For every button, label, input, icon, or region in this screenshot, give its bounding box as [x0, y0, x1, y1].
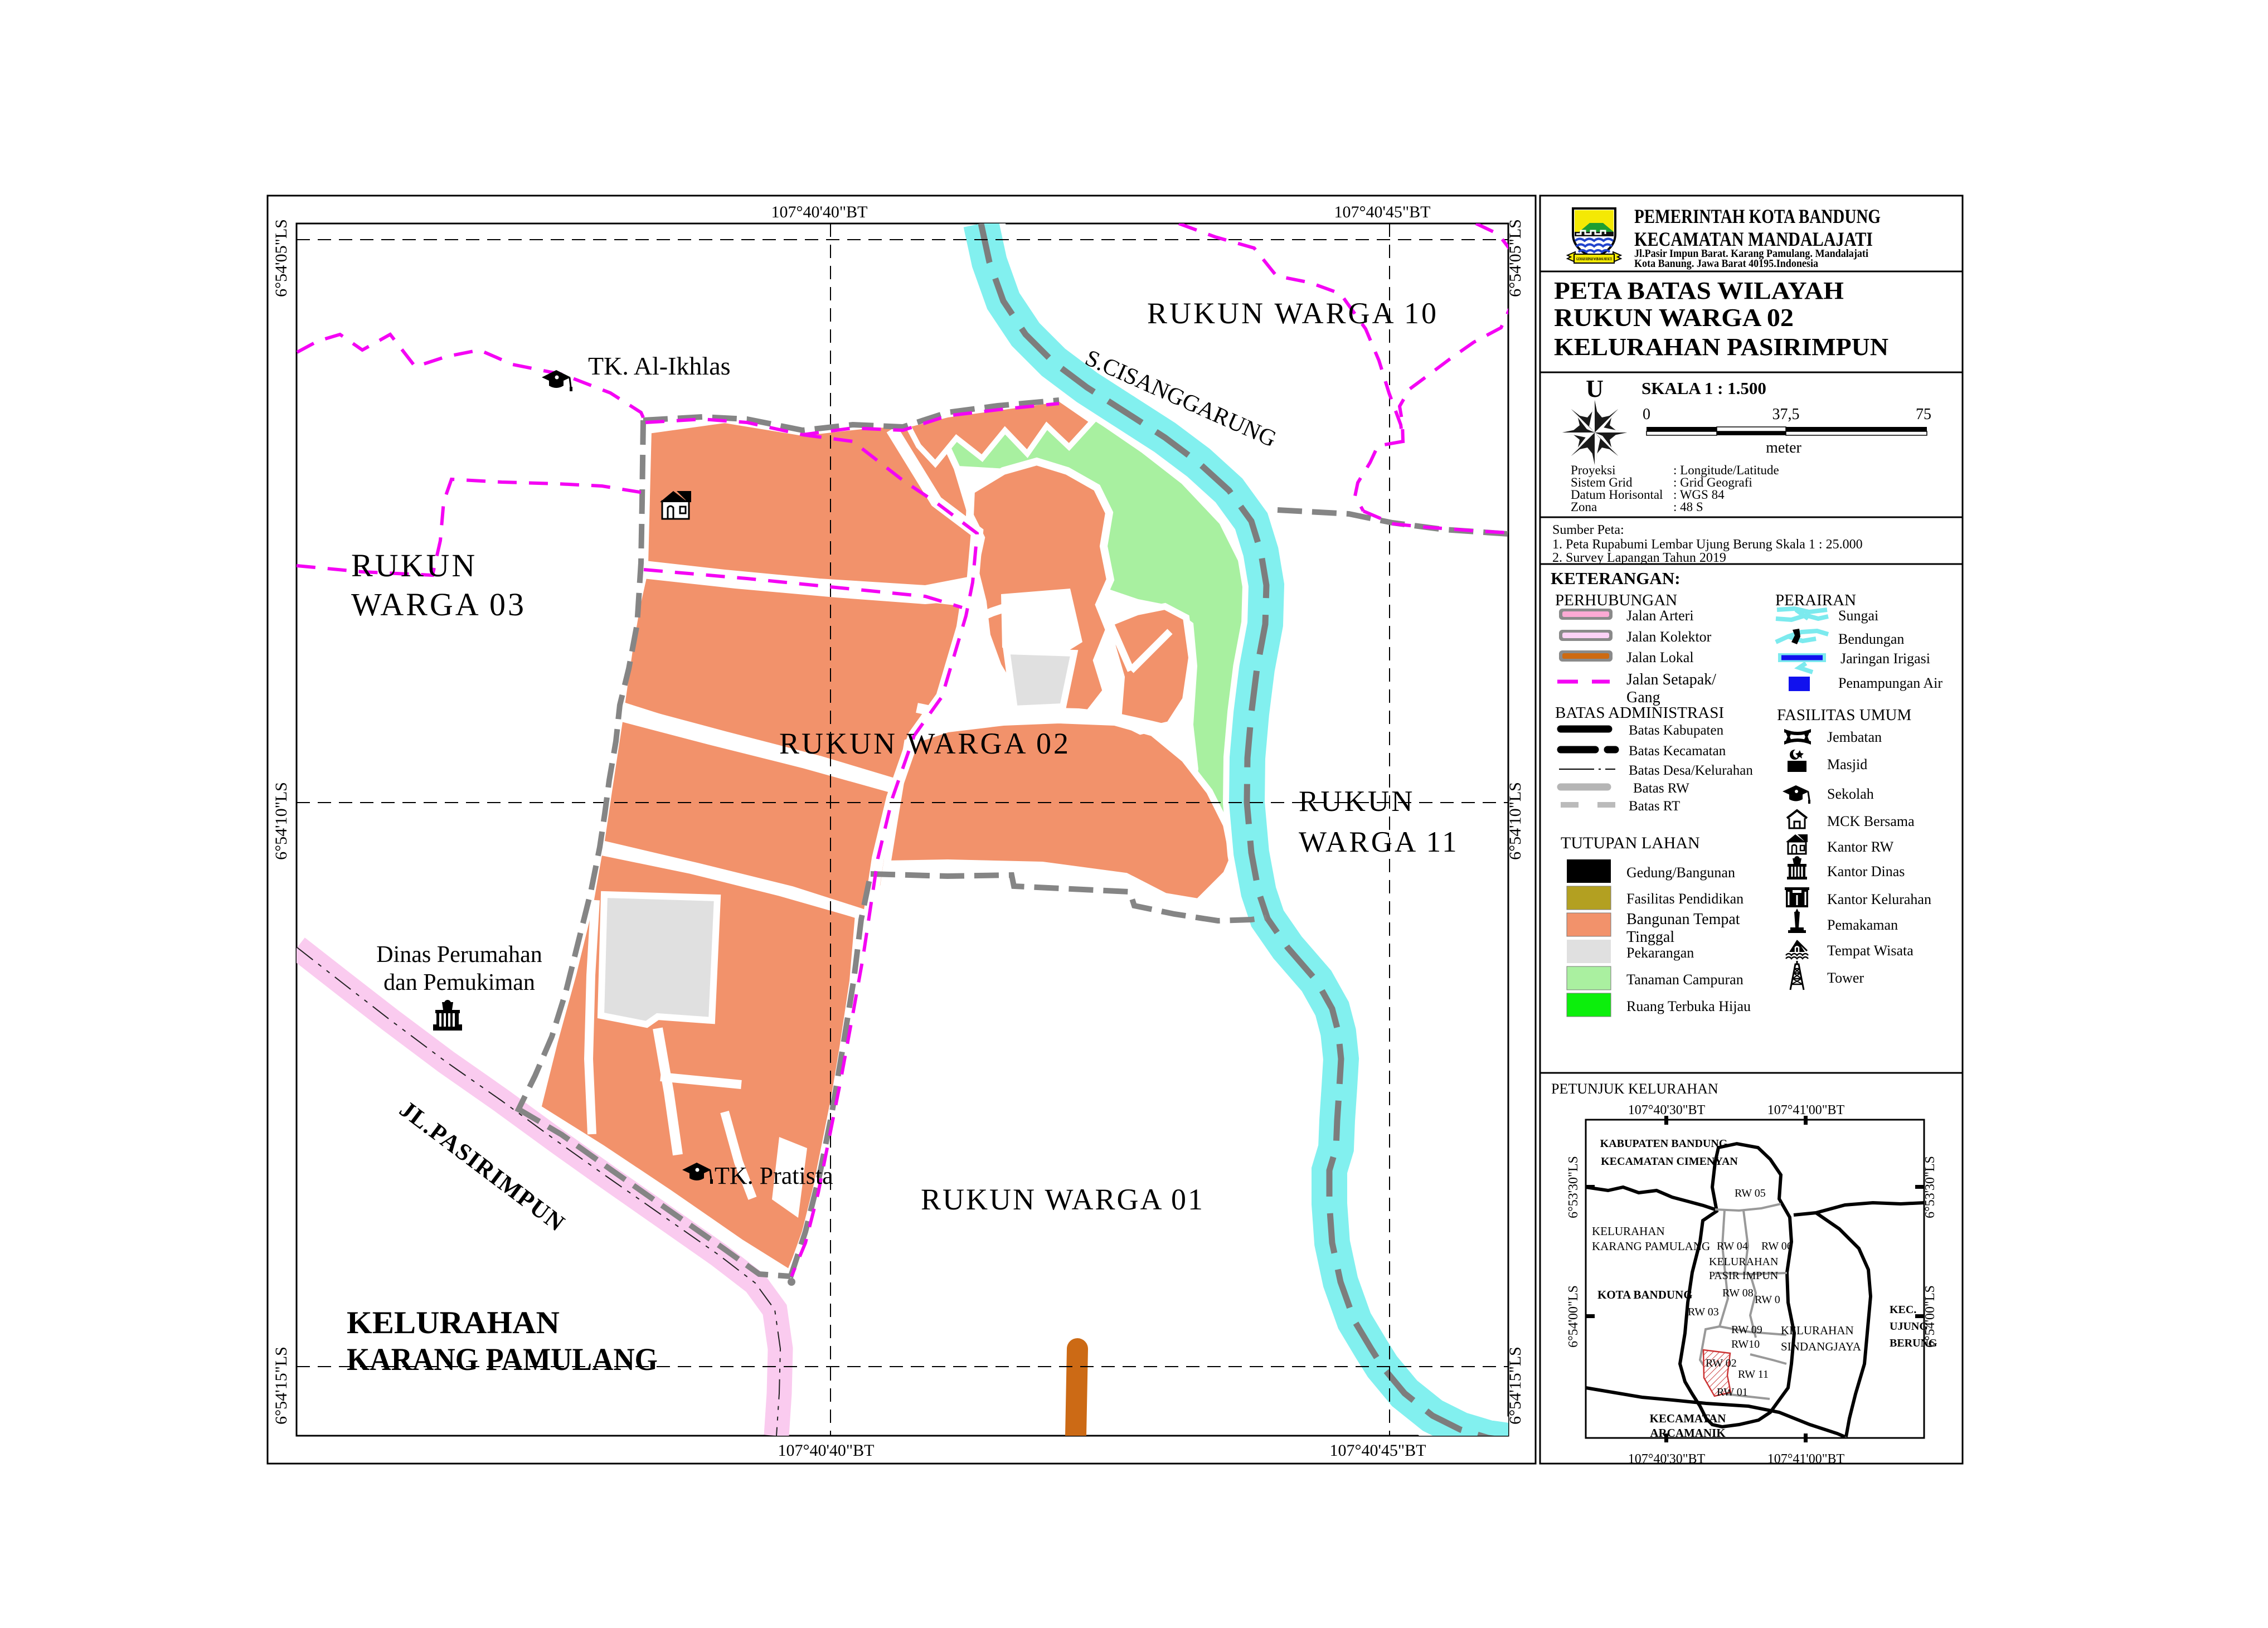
svg-text:RW 03: RW 03: [1688, 1306, 1719, 1318]
svg-text:RW 06: RW 06: [1761, 1240, 1793, 1252]
svg-text:PERHUBUNGAN: PERHUBUNGAN: [1555, 591, 1677, 609]
svg-text:PETA BATAS WILAYAH: PETA BATAS WILAYAH: [1554, 277, 1844, 304]
svg-text:Bangunan Tempat: Bangunan Tempat: [1626, 911, 1740, 928]
svg-text:2. Survey Lapangan Tahun 2019: 2. Survey Lapangan Tahun 2019: [1552, 551, 1726, 565]
svg-text:107°41'00"BT: 107°41'00"BT: [1767, 1452, 1845, 1466]
svg-text:RUKUN WARGA 02: RUKUN WARGA 02: [1554, 303, 1794, 332]
svg-text:107°40'30"BT: 107°40'30"BT: [1628, 1103, 1706, 1117]
svg-text:Sekolah: Sekolah: [1827, 786, 1874, 802]
svg-text:107°40'40"BT: 107°40'40"BT: [771, 203, 868, 221]
svg-text:Kantor Dinas: Kantor Dinas: [1827, 863, 1905, 879]
svg-text:RW 11: RW 11: [1738, 1368, 1769, 1381]
svg-text:107°41'00"BT: 107°41'00"BT: [1767, 1103, 1845, 1117]
svg-text:Tanaman Campuran: Tanaman Campuran: [1626, 971, 1744, 988]
svg-text:Masjid: Masjid: [1827, 756, 1867, 772]
svg-text:RW 09: RW 09: [1731, 1324, 1762, 1336]
svg-text:KELURAHAN: KELURAHAN: [1781, 1324, 1854, 1337]
svg-text:KELURAHAN: KELURAHAN: [347, 1305, 560, 1340]
svg-text:Kantor RW: Kantor RW: [1827, 839, 1894, 855]
svg-text:Dinas Perumahan: Dinas Perumahan: [376, 942, 542, 968]
svg-text:PERAIRAN: PERAIRAN: [1775, 591, 1856, 609]
svg-text:Kantor Kelurahan: Kantor Kelurahan: [1827, 891, 1931, 907]
svg-text:TK. Pratista: TK. Pratista: [715, 1162, 833, 1189]
svg-text:Jalan Arteri: Jalan Arteri: [1626, 608, 1694, 624]
svg-text:75: 75: [1916, 406, 1931, 423]
svg-text:Pekarangan: Pekarangan: [1626, 945, 1694, 961]
svg-text:Jembatan: Jembatan: [1827, 729, 1882, 745]
svg-text:Penampungan Air: Penampungan Air: [1838, 675, 1942, 691]
svg-text:Ruang Terbuka Hijau: Ruang Terbuka Hijau: [1626, 998, 1751, 1014]
svg-text:GEMAH RIPAH WIBAWA MUKTI: GEMAH RIPAH WIBAWA MUKTI: [1576, 257, 1612, 261]
svg-text:Bendungan: Bendungan: [1838, 631, 1904, 647]
svg-text:37,5: 37,5: [1772, 406, 1800, 423]
svg-text:KOTA BANDUNG: KOTA BANDUNG: [1597, 1288, 1693, 1301]
svg-text:: 48 S: : 48 S: [1673, 500, 1703, 514]
svg-text:TK. Al-Ikhlas: TK. Al-Ikhlas: [588, 352, 731, 380]
svg-text:RW 02: RW 02: [1706, 1357, 1737, 1369]
svg-text:107°40'30"BT: 107°40'30"BT: [1628, 1452, 1706, 1466]
svg-text:Jalan Setapak/: Jalan Setapak/: [1626, 671, 1716, 688]
svg-text:6°54'05"LS: 6°54'05"LS: [1506, 219, 1524, 297]
svg-text:RUKUN WARGA 01: RUKUN WARGA 01: [921, 1183, 1205, 1216]
svg-text:BATAS ADMINISTRASI: BATAS ADMINISTRASI: [1555, 704, 1724, 722]
svg-text:6°54'05"LS: 6°54'05"LS: [272, 219, 290, 297]
svg-text:Fasilitas Pendidikan: Fasilitas Pendidikan: [1626, 891, 1744, 907]
svg-text:Batas Kecamatan: Batas Kecamatan: [1629, 743, 1726, 759]
svg-text:SINDANGJAYA: SINDANGJAYA: [1781, 1340, 1862, 1353]
svg-text:RUKUN WARGA 10: RUKUN WARGA 10: [1147, 297, 1439, 330]
svg-text:Tinggal: Tinggal: [1626, 929, 1674, 946]
svg-text:KARANG PAMULANG: KARANG PAMULANG: [347, 1342, 658, 1377]
svg-text:Batas Desa/Kelurahan: Batas Desa/Kelurahan: [1629, 763, 1753, 778]
svg-text:RW 08: RW 08: [1722, 1287, 1754, 1299]
svg-text:dan Pemukiman: dan Pemukiman: [383, 970, 535, 995]
svg-text:Sumber Peta:: Sumber Peta:: [1552, 523, 1624, 537]
svg-text:UJUNG: UJUNG: [1890, 1320, 1928, 1333]
svg-text:RUKUN: RUKUN: [351, 547, 477, 584]
svg-text:KELURAHAN PASIRIMPUN: KELURAHAN PASIRIMPUN: [1554, 333, 1888, 361]
svg-text:Jalan Kolektor: Jalan Kolektor: [1626, 629, 1712, 645]
svg-text:KEC.: KEC.: [1890, 1304, 1916, 1316]
svg-text:Zona: Zona: [1571, 500, 1597, 514]
svg-text:PEMERINTAH KOTA BANDUNG: PEMERINTAH KOTA BANDUNG: [1634, 205, 1881, 227]
svg-text:107°40'45"BT: 107°40'45"BT: [1334, 203, 1431, 221]
svg-text:1. Peta Rupabumi Lembar Ujung: 1. Peta Rupabumi Lembar Ujung Berung Ska…: [1552, 537, 1863, 552]
svg-text:ARCAMANIK: ARCAMANIK: [1650, 1426, 1726, 1440]
svg-text:Batas RW: Batas RW: [1633, 781, 1689, 796]
svg-text:RW 05: RW 05: [1735, 1187, 1766, 1199]
svg-text:BERUNG: BERUNG: [1890, 1337, 1937, 1349]
svg-text:KELURAHAN: KELURAHAN: [1709, 1256, 1778, 1268]
svg-text:Pemakaman: Pemakaman: [1827, 917, 1898, 933]
svg-text:TUTUPAN LAHAN: TUTUPAN LAHAN: [1561, 834, 1700, 852]
svg-text:MCK Bersama: MCK Bersama: [1827, 813, 1915, 829]
svg-text:6°54'15"LS: 6°54'15"LS: [272, 1347, 290, 1425]
svg-text:KABUPATEN BANDUNG: KABUPATEN BANDUNG: [1600, 1138, 1728, 1150]
svg-text:RW 04: RW 04: [1717, 1240, 1748, 1252]
svg-text:107°40'45"BT: 107°40'45"BT: [1330, 1441, 1426, 1460]
svg-text:RUKUN: RUKUN: [1299, 785, 1415, 818]
svg-text:6°54'10"LS: 6°54'10"LS: [272, 782, 290, 860]
svg-text:RUKUN WARGA 02: RUKUN WARGA 02: [779, 727, 1071, 760]
svg-text:Batas RT: Batas RT: [1629, 799, 1680, 814]
svg-text:6°54'10"LS: 6°54'10"LS: [1506, 782, 1524, 860]
svg-text:PASIR IMPUN: PASIR IMPUN: [1709, 1270, 1778, 1282]
svg-text:FASILITAS UMUM: FASILITAS UMUM: [1777, 706, 1911, 724]
svg-text:meter: meter: [1766, 439, 1801, 456]
svg-text:Tower: Tower: [1827, 970, 1864, 986]
svg-text:KARANG PAMULANG: KARANG PAMULANG: [1592, 1240, 1710, 1253]
svg-text:RW10: RW10: [1731, 1338, 1760, 1350]
svg-text:KETERANGAN:: KETERANGAN:: [1551, 568, 1681, 588]
svg-text:RW 0: RW 0: [1755, 1294, 1780, 1306]
svg-text:Kota Banung. Jawa Barat 40195.: Kota Banung. Jawa Barat 40195.Indonesia: [1634, 257, 1818, 270]
svg-text:KECAMATAN CIMENYAN: KECAMATAN CIMENYAN: [1601, 1155, 1738, 1168]
svg-text:Tempat Wisata: Tempat Wisata: [1827, 942, 1914, 959]
svg-text:KECAMATAN MANDALAJATI: KECAMATAN MANDALAJATI: [1634, 228, 1873, 250]
svg-text:WARGA 11: WARGA 11: [1299, 826, 1459, 858]
svg-text:6°53'30"LS: 6°53'30"LS: [1923, 1156, 1937, 1218]
svg-text:U: U: [1586, 375, 1604, 402]
svg-text:PETUNJUK KELURAHAN: PETUNJUK KELURAHAN: [1551, 1081, 1718, 1097]
svg-text:6°53'30"LS: 6°53'30"LS: [1566, 1156, 1581, 1218]
svg-text:0: 0: [1643, 406, 1650, 423]
svg-text:RW 01: RW 01: [1717, 1386, 1748, 1398]
svg-text:Jalan Lokal: Jalan Lokal: [1626, 649, 1694, 665]
svg-text:KELURAHAN: KELURAHAN: [1592, 1224, 1665, 1238]
svg-text:SKALA 1 : 1.500: SKALA 1 : 1.500: [1641, 378, 1766, 398]
svg-text:KECAMATAN: KECAMATAN: [1650, 1412, 1726, 1425]
svg-text:Batas Kabupaten: Batas Kabupaten: [1629, 723, 1724, 738]
svg-text:WARGA 03: WARGA 03: [351, 586, 526, 623]
svg-text:6°54'00"LS: 6°54'00"LS: [1566, 1285, 1581, 1348]
svg-text:Sungai: Sungai: [1838, 608, 1878, 624]
svg-text:Gedung/Bangunan: Gedung/Bangunan: [1626, 864, 1735, 881]
svg-text:6°54'15"LS: 6°54'15"LS: [1506, 1347, 1524, 1425]
svg-text:Jaringan Irigasi: Jaringan Irigasi: [1840, 650, 1930, 667]
svg-text:107°40'40"BT: 107°40'40"BT: [778, 1441, 875, 1460]
